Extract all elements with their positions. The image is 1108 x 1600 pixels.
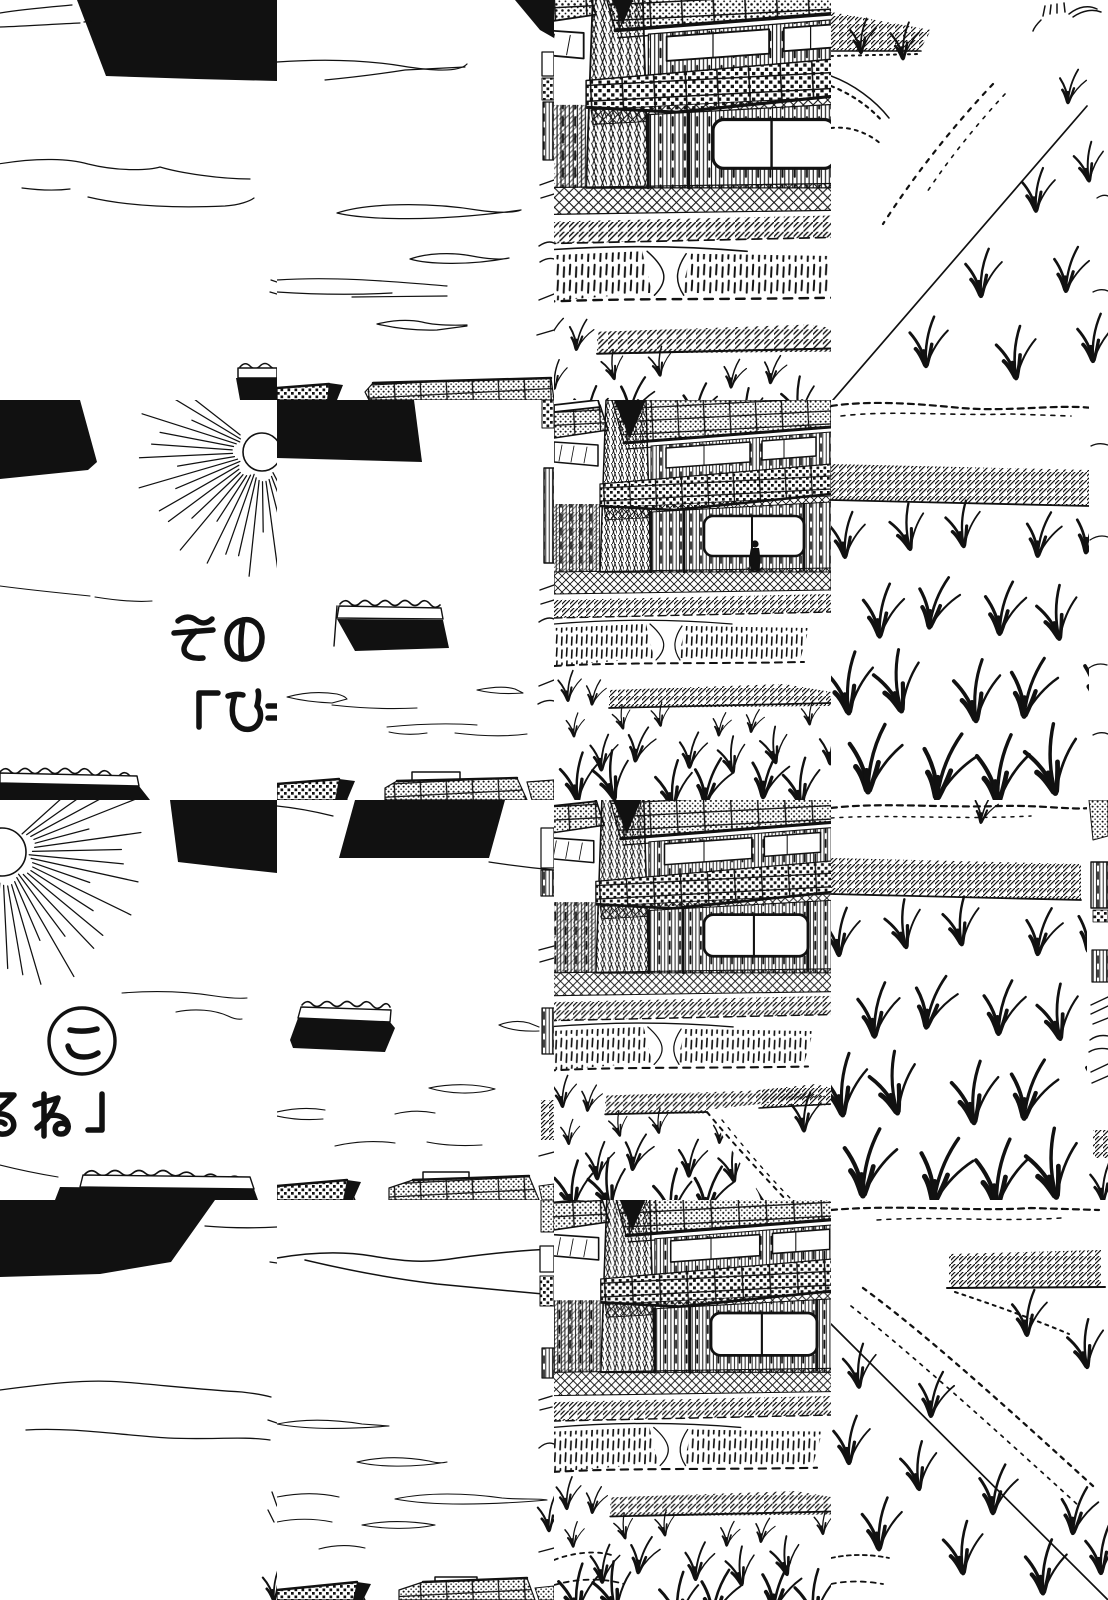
hill-contours (277, 1249, 554, 1295)
seedling-fragment (263, 1566, 277, 1600)
cloud-lines (0, 586, 152, 601)
cloud-lines (122, 992, 247, 1020)
stubble-corner (831, 1555, 889, 1584)
sun (0, 828, 26, 876)
black-roof-silhouette (77, 0, 277, 81)
grass-tuft-marks (1033, 3, 1101, 31)
farmhouse-scene (554, 1200, 831, 1600)
grass-bank (831, 12, 931, 59)
stubble-rows (831, 1208, 1099, 1220)
grass-bank (831, 464, 1089, 506)
margin-marks (1093, 195, 1108, 292)
tile-paddy-diagonal-path (831, 0, 1108, 400)
field-bund-curves (831, 76, 889, 144)
black-roof-silhouette (170, 800, 277, 873)
tile-sky-roof-silhouette (0, 0, 277, 400)
rooftops (277, 1172, 554, 1200)
tile-sky-black-roof (0, 1200, 277, 1600)
tile-farmhouse-closeup (554, 0, 831, 400)
rice-seedlings (910, 67, 1108, 379)
distant-rooftop (236, 364, 277, 401)
circled-ko-mark: こ (49, 1008, 115, 1074)
black-roof-corner (515, 0, 554, 38)
sun-rays (0, 800, 141, 993)
tile-sky-clouds (277, 0, 554, 400)
tile-sun-circled-ko: こ るね」 (0, 800, 277, 1200)
rooftops (277, 1577, 554, 1600)
bank-ticks (955, 1292, 1069, 1334)
rooftops (277, 378, 554, 400)
tile-sun-dialogue: その 「ひ (0, 400, 277, 800)
path-edge-ticks (883, 84, 993, 224)
tile-paddy-rows-top (831, 400, 1108, 800)
farmhouse-scene (554, 0, 831, 400)
grass-bank (949, 1250, 1101, 1288)
house-edge-fragments (537, 52, 554, 335)
cloud-lines (287, 687, 527, 736)
path-edge-line (833, 106, 1087, 400)
cloud-lines (277, 60, 521, 330)
cloud-lines (277, 1420, 547, 1549)
black-roof-silhouette (0, 1200, 215, 1277)
house-edge-fragments (539, 828, 554, 1156)
farmhouse-scene (554, 400, 831, 800)
floating-roof (334, 601, 449, 652)
tile-sky-floating-roof (277, 400, 554, 800)
stubble-rows (831, 805, 1089, 818)
tile-sky-floating-roof-2 (277, 800, 554, 1200)
rooftop-ridge (0, 769, 150, 801)
grass-bank (831, 858, 1081, 900)
tile-farmhouse-tower (554, 800, 831, 1200)
tile-paddy-rows-mid (831, 800, 1108, 1200)
black-roof-silhouette (0, 400, 97, 479)
floating-roof (290, 1002, 395, 1053)
manga-page-collage: その 「ひ (0, 0, 1108, 1600)
rooftops (277, 772, 554, 800)
tile-sky-cloud-bands (277, 1200, 554, 1600)
rooftop-ridge (55, 1171, 258, 1201)
stubble-rows (831, 403, 1093, 416)
rice-seedlings (831, 499, 1108, 800)
black-roof-silhouette (277, 400, 422, 462)
tile-farmhouse-village (554, 400, 831, 800)
cloud-line (0, 1165, 58, 1177)
sun (243, 433, 277, 471)
tile-farmhouse-fields (554, 1200, 831, 1600)
sun-rays (139, 400, 277, 578)
house-edge-fragments (538, 400, 554, 704)
circled-ko-text: こ (59, 1016, 106, 1071)
tile-paddy-diagonal-bund (831, 1200, 1108, 1600)
black-roof-silhouette (339, 800, 505, 858)
path-margin (1089, 400, 1108, 800)
rice-seedlings (831, 895, 1108, 1200)
